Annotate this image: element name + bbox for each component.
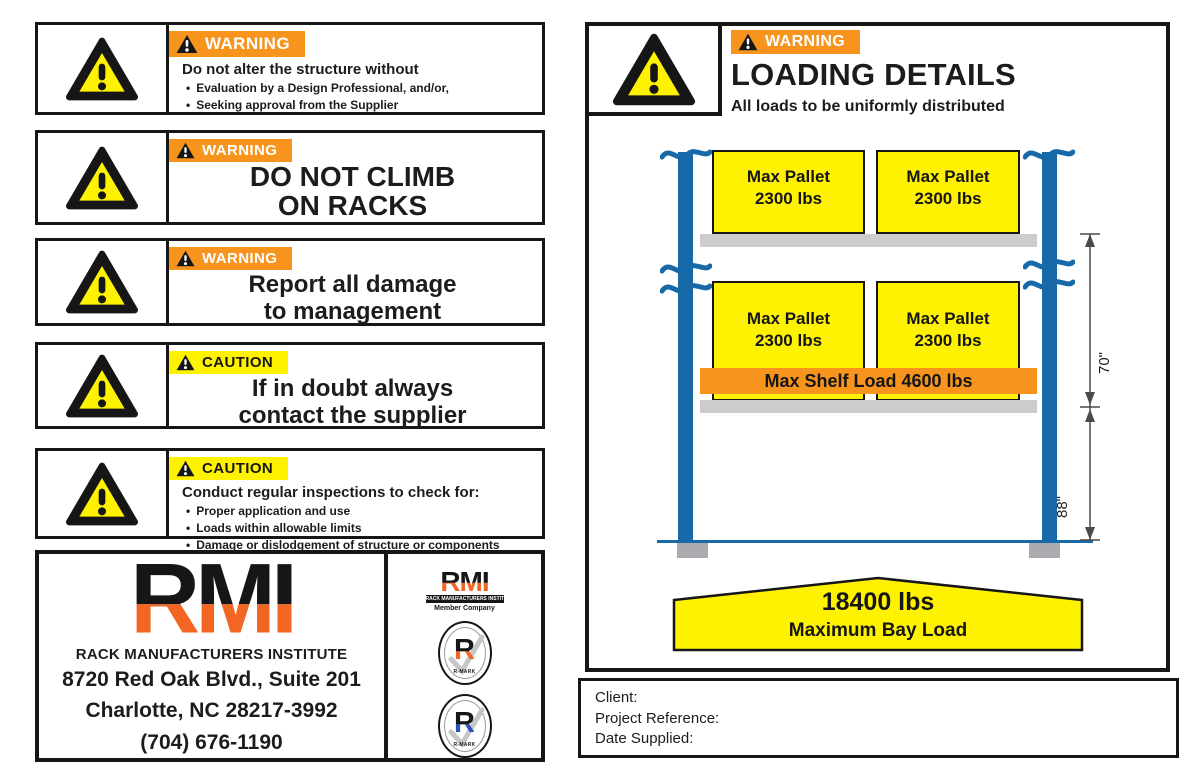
bullet-text: Proper application and use bbox=[196, 503, 350, 520]
rmi-phone: (704) 676-1190 bbox=[140, 728, 282, 758]
bullet-marker: • bbox=[186, 97, 190, 114]
panel-content: CAUTION Conduct regular inspections to c… bbox=[169, 451, 542, 536]
pallet-load-box: Max Pallet 2300 lbs bbox=[876, 150, 1020, 234]
pallet-label: Max Pallet bbox=[714, 308, 863, 330]
message-line: If in doubt always bbox=[169, 376, 536, 403]
message-line: to management bbox=[169, 299, 536, 326]
message-line: DO NOT CLIMB bbox=[169, 163, 536, 192]
dimension-label-beam-spacing: 70" bbox=[1096, 352, 1113, 374]
bullet-item: • Proper application and use bbox=[186, 503, 536, 520]
rmark-letter: R R bbox=[453, 636, 477, 664]
floor-line bbox=[657, 540, 1093, 543]
panel-rmi-info: RMI RMI RACK MANUFACTURERS INSTITUTE 872… bbox=[35, 550, 545, 762]
panel-inspections: CAUTION Conduct regular inspections to c… bbox=[35, 448, 545, 539]
rmi-address-line: 8720 Red Oak Blvd., Suite 201 bbox=[62, 665, 361, 695]
rmi-address-line: Charlotte, NC 28217-3992 bbox=[85, 696, 337, 726]
message-line: ON RACKS bbox=[169, 192, 536, 221]
pallet-value: 2300 lbs bbox=[714, 330, 863, 352]
loading-details-subtitle: All loads to be uniformly distributed bbox=[731, 98, 1005, 116]
panel-content: WARNING Do not alter the structure witho… bbox=[169, 25, 542, 112]
banner-triangle-icon bbox=[176, 354, 195, 371]
pallet-value: 2300 lbs bbox=[878, 330, 1018, 352]
pallet-label: Max Pallet bbox=[878, 166, 1018, 188]
panel-do-not-climb: WARNING DO NOT CLIMB ON RACKS bbox=[35, 130, 545, 225]
dimension-label-first-beam: 88" bbox=[1054, 496, 1071, 518]
panel-message: If in doubt always contact the supplier bbox=[169, 376, 536, 430]
warning-triangle-icon bbox=[65, 250, 139, 314]
panel-content: CAUTION If in doubt always contact the s… bbox=[169, 345, 542, 426]
panel-message: DO NOT CLIMB ON RACKS bbox=[169, 163, 536, 221]
panel-heading: Do not alter the structure without bbox=[182, 61, 536, 78]
panel-heading: Conduct regular inspections to check for… bbox=[182, 484, 536, 501]
bullet-marker: • bbox=[186, 503, 190, 520]
warning-triangle-icon bbox=[65, 354, 139, 418]
post-break-icon bbox=[660, 143, 712, 165]
banner-label: CAUTION bbox=[202, 460, 273, 477]
panel-report-damage: WARNING Report all damage to management bbox=[35, 238, 545, 326]
banner-triangle-icon bbox=[176, 34, 198, 54]
rmark-seal-blue: R R R-MARK bbox=[438, 694, 492, 758]
post-break-icon bbox=[1023, 273, 1075, 295]
banner-label: WARNING bbox=[205, 34, 290, 54]
post-break-icon bbox=[1023, 253, 1075, 275]
rmark-label: R-MARK bbox=[440, 669, 490, 675]
project-info-box: Client: Project Reference: Date Supplied… bbox=[578, 678, 1179, 758]
banner-triangle-icon bbox=[176, 142, 195, 159]
warning-triangle-icon bbox=[612, 33, 696, 106]
rmark-seal-orange: R R R-MARK bbox=[438, 621, 492, 685]
rmi-member-logo-letters: RMI RMI bbox=[426, 570, 504, 594]
hazard-icon-cell bbox=[38, 25, 169, 112]
base-plate bbox=[1029, 543, 1060, 558]
dimension-line bbox=[1072, 226, 1108, 548]
rmark-letter: R R bbox=[453, 709, 477, 737]
project-reference-field-label: Project Reference: bbox=[595, 710, 1162, 727]
rack-post-left bbox=[678, 152, 693, 541]
warning-triangle-icon bbox=[65, 37, 139, 101]
banner-triangle-icon bbox=[176, 460, 195, 477]
bullet-item: • Evaluation by a Design Professional, a… bbox=[186, 80, 536, 97]
bullet-item: • Seeking approval from the Supplier bbox=[186, 97, 536, 114]
panel-content: WARNING Report all damage to management bbox=[169, 241, 542, 323]
panel-do-not-alter: WARNING Do not alter the structure witho… bbox=[35, 22, 545, 115]
warning-triangle-icon bbox=[65, 146, 139, 210]
hazard-icon-cell bbox=[38, 451, 169, 536]
date-supplied-field-label: Date Supplied: bbox=[595, 730, 1162, 747]
panel-message: Report all damage to management bbox=[169, 272, 536, 326]
message-line: contact the supplier bbox=[169, 403, 536, 430]
loading-details-title: LOADING DETAILS bbox=[731, 57, 1016, 93]
bullet-text: Loads within allowable limits bbox=[196, 520, 361, 537]
caution-banner: CAUTION bbox=[169, 457, 288, 480]
bullet-list: • Evaluation by a Design Professional, a… bbox=[186, 80, 536, 114]
message-line: Report all damage bbox=[169, 272, 536, 299]
rmi-org-name: RACK MANUFACTURERS INSTITUTE bbox=[76, 646, 347, 663]
warning-banner: WARNING bbox=[731, 30, 860, 54]
hazard-icon-cell bbox=[38, 133, 169, 222]
bullet-list: • Proper application and use • Loads wit… bbox=[186, 503, 536, 554]
post-break-icon bbox=[660, 277, 712, 299]
warning-banner: WARNING bbox=[169, 31, 305, 57]
hazard-icon-cell bbox=[38, 241, 169, 323]
rack-beam-lower bbox=[700, 400, 1037, 413]
max-bay-load-value: 18400 lbs bbox=[672, 588, 1084, 617]
rmark-label: R-MARK bbox=[440, 742, 490, 748]
caution-banner: CAUTION bbox=[169, 351, 288, 374]
banner-label: WARNING bbox=[202, 142, 277, 159]
pallet-value: 2300 lbs bbox=[714, 188, 863, 210]
pallet-label: Max Pallet bbox=[714, 166, 863, 188]
banner-triangle-icon bbox=[738, 33, 758, 51]
hazard-icon-cell bbox=[585, 22, 722, 116]
post-break-icon bbox=[1023, 143, 1075, 165]
bullet-text: Evaluation by a Design Professional, and… bbox=[196, 80, 449, 97]
bullet-item: • Loads within allowable limits bbox=[186, 520, 536, 537]
bullet-marker: • bbox=[186, 520, 190, 537]
warning-banner: WARNING bbox=[169, 139, 292, 162]
rmi-logo: RMI RMI bbox=[86, 556, 338, 646]
warning-banner: WARNING bbox=[169, 247, 292, 270]
pallet-label: Max Pallet bbox=[878, 308, 1018, 330]
rmi-member-org-bar: RACK MANUFACTURERS INSTITUTE bbox=[426, 595, 504, 603]
banner-triangle-icon bbox=[176, 250, 195, 267]
hazard-icon-cell bbox=[38, 345, 169, 426]
max-shelf-load-beam: Max Shelf Load 4600 lbs bbox=[700, 368, 1037, 394]
pallet-load-box: Max Pallet 2300 lbs bbox=[712, 150, 865, 234]
rmi-member-label: Member Company bbox=[426, 605, 504, 612]
rack-post-right bbox=[1042, 152, 1057, 541]
panel-content: WARNING DO NOT CLIMB ON RACKS bbox=[169, 133, 542, 222]
rmi-contact-block: RMI RMI RACK MANUFACTURERS INSTITUTE 872… bbox=[39, 554, 388, 758]
max-bay-load-label: Maximum Bay Load bbox=[672, 620, 1084, 642]
post-break-icon bbox=[660, 257, 712, 279]
base-plate bbox=[677, 543, 708, 558]
banner-label: WARNING bbox=[202, 250, 277, 267]
bullet-marker: • bbox=[186, 80, 190, 97]
rmi-membership-block: RMI RMI RACK MANUFACTURERS INSTITUTE Mem… bbox=[388, 554, 541, 758]
bullet-text: Seeking approval from the Supplier bbox=[196, 97, 398, 114]
rack-safety-label-sheet: WARNING Do not alter the structure witho… bbox=[0, 0, 1200, 784]
panel-contact-supplier: CAUTION If in doubt always contact the s… bbox=[35, 342, 545, 429]
client-field-label: Client: bbox=[595, 689, 1162, 706]
rmi-member-logo: RMI RMI RACK MANUFACTURERS INSTITUTE Mem… bbox=[426, 570, 504, 612]
banner-label: WARNING bbox=[765, 33, 845, 51]
banner-label: CAUTION bbox=[202, 354, 273, 371]
rack-beam-upper bbox=[700, 234, 1037, 247]
warning-triangle-icon bbox=[65, 462, 139, 526]
pallet-value: 2300 lbs bbox=[878, 188, 1018, 210]
